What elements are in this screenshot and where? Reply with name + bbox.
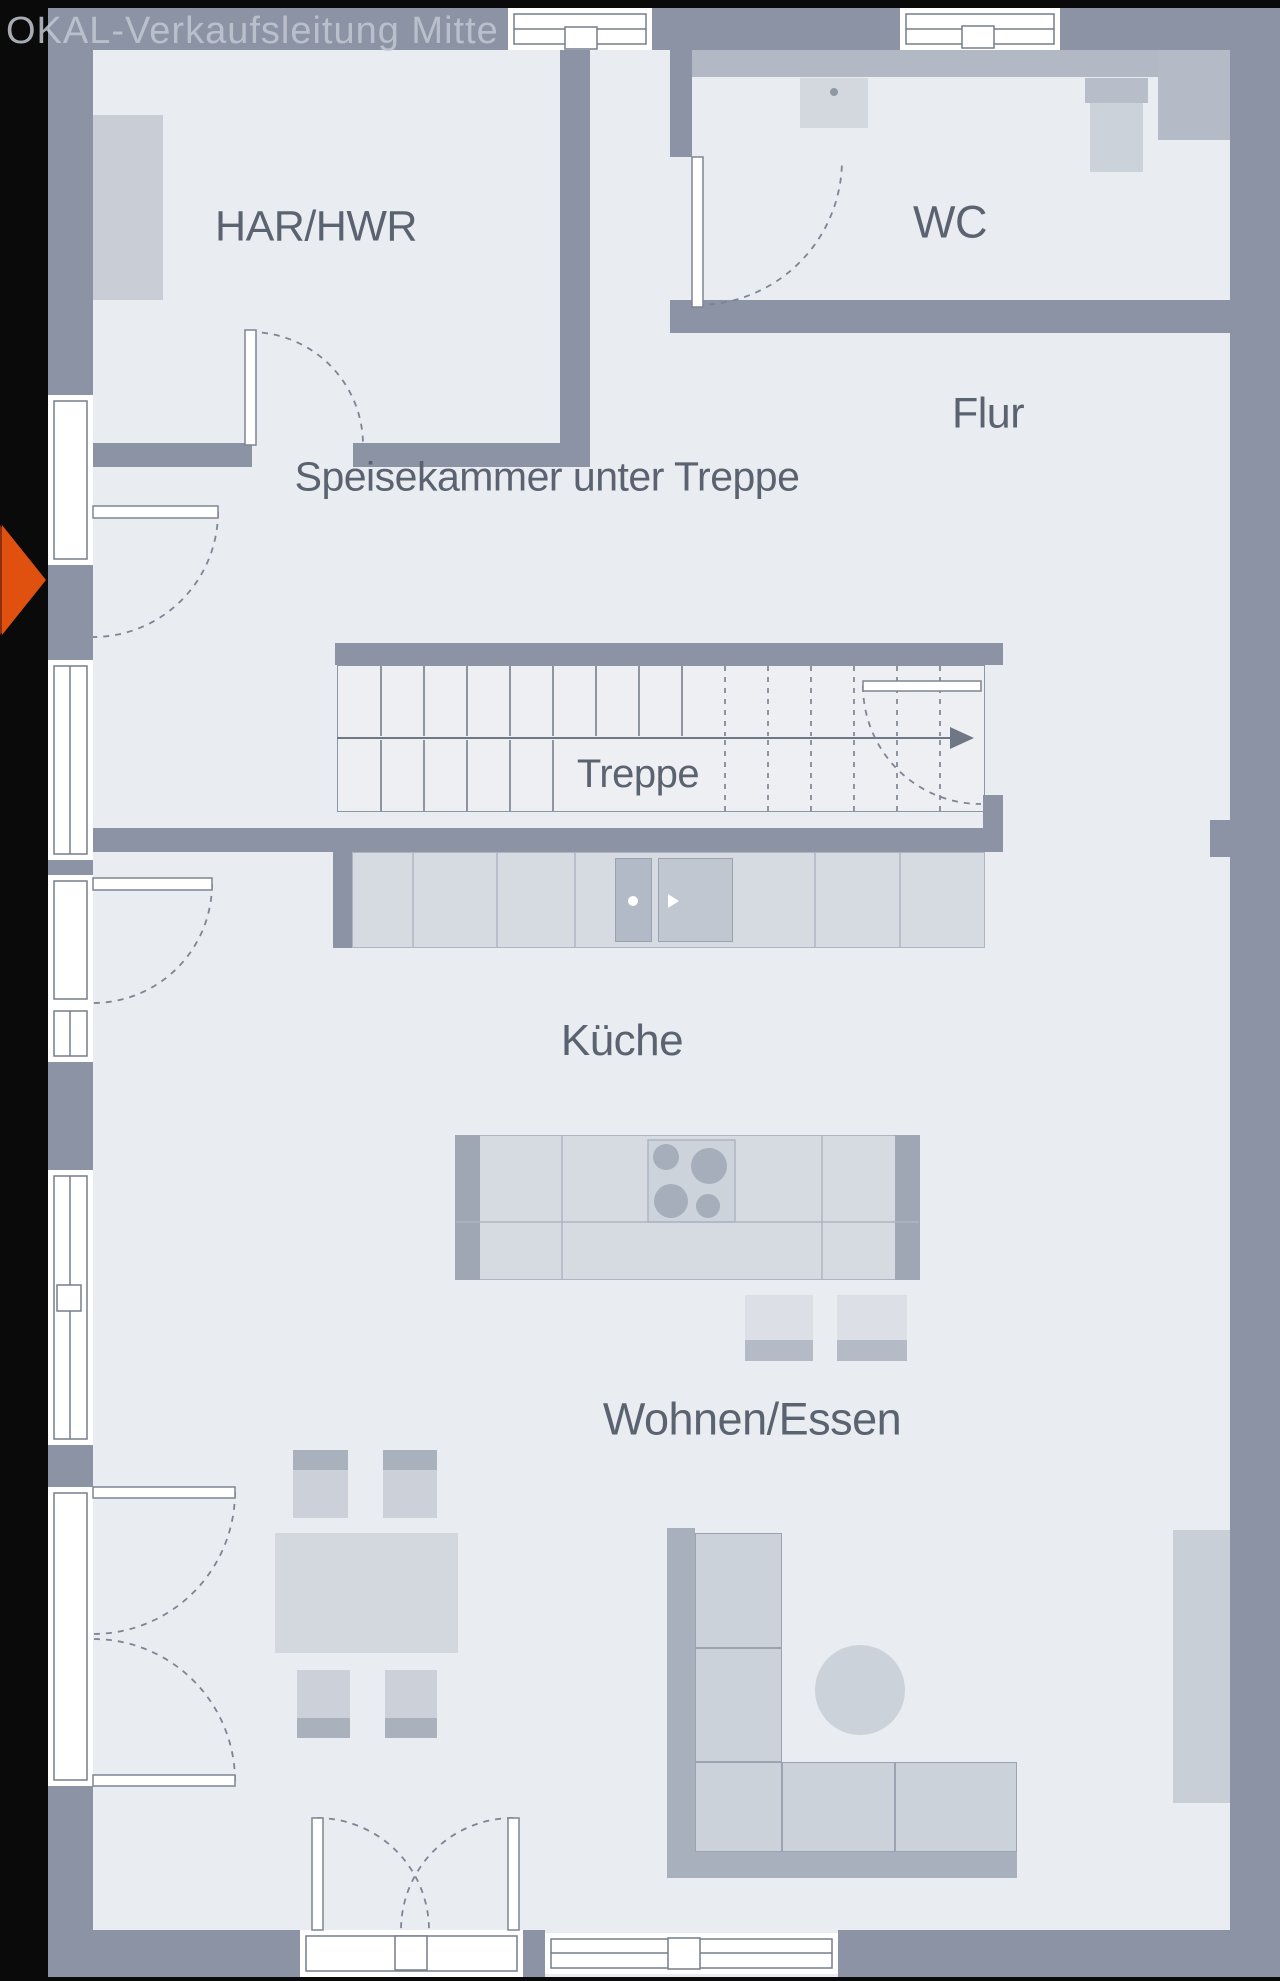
- door-leaves: [93, 157, 981, 1930]
- room-label-speisekammer: Speisekammer unter Treppe: [295, 457, 800, 498]
- room-label-wc: WC: [913, 200, 987, 245]
- room-label-treppe: Treppe: [577, 754, 699, 794]
- stair-direction-arrow-icon: [950, 727, 974, 749]
- room-label-kueche: Küche: [561, 1019, 683, 1063]
- window-frames: [54, 14, 1054, 1971]
- room-label-flur: Flur: [952, 393, 1024, 436]
- basin-tap-icon: [830, 88, 838, 96]
- oven-knob-icon: [628, 896, 638, 906]
- room-label-har-hwr: HAR/HWR: [215, 206, 417, 249]
- room-label-wohnen-essen: Wohnen/Essen: [603, 1397, 901, 1442]
- floorplan-canvas: HAR/HWR WC Flur Speisekammer unter Trepp…: [0, 0, 1280, 1981]
- watermark: OKAL-Verkaufsleitung Mitte: [6, 10, 499, 53]
- window-handle-symbols: [57, 26, 994, 1970]
- entrance-arrow-icon: [2, 525, 46, 635]
- cooktop-burners: [653, 1144, 727, 1218]
- door-swing-arcs: [93, 160, 981, 1930]
- plan-linework-overlay: [0, 0, 1280, 1981]
- appliance-triangle-icon: [668, 894, 679, 908]
